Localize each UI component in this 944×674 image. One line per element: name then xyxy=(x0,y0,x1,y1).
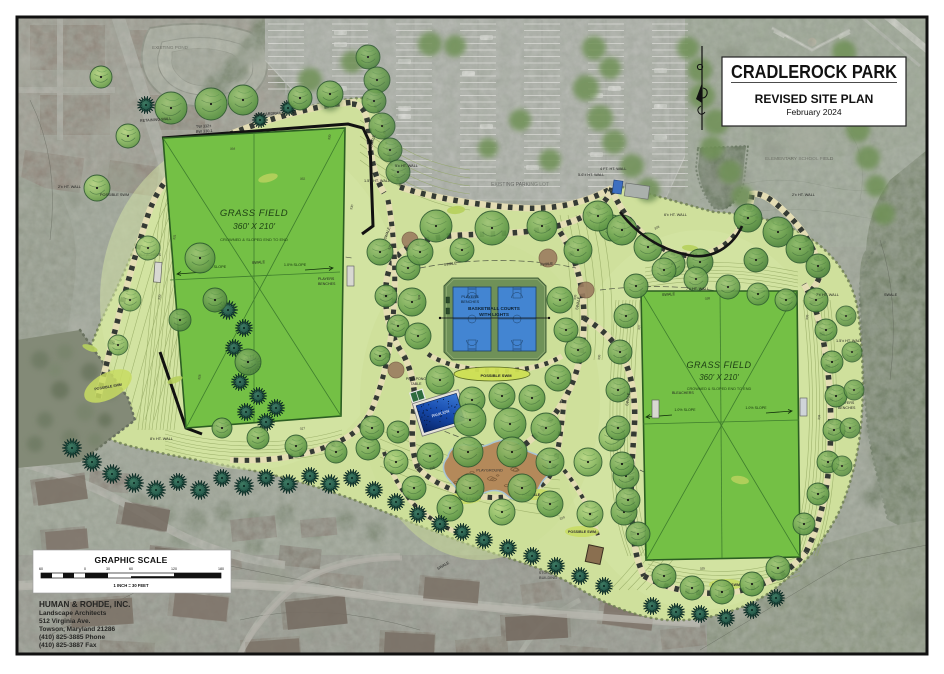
svg-text:336: 336 xyxy=(597,354,601,360)
svg-text:334: 334 xyxy=(230,147,236,151)
svg-text:PLAYGROUND: PLAYGROUND xyxy=(476,469,503,473)
svg-text:60: 60 xyxy=(129,567,133,571)
svg-text:2'± HT. WALL: 2'± HT. WALL xyxy=(58,185,81,189)
svg-text:POSSIBLE SWM: POSSIBLE SWM xyxy=(568,530,596,534)
svg-text:POSSIBLE SWM: POSSIBLE SWM xyxy=(100,193,129,197)
svg-text:8'± HT. WALL: 8'± HT. WALL xyxy=(150,437,173,441)
svg-text:6'± HT. WALL: 6'± HT. WALL xyxy=(664,213,687,217)
svg-text:334: 334 xyxy=(817,414,821,420)
svg-text:332: 332 xyxy=(300,177,306,181)
svg-text:1.0% SLOPE: 1.0% SLOPE xyxy=(284,263,307,267)
svg-text:GRASS FIELD: GRASS FIELD xyxy=(220,208,288,219)
svg-text:CROWNED & SLOPED END TO END: CROWNED & SLOPED END TO END xyxy=(220,237,288,242)
svg-text:BENCHES: BENCHES xyxy=(461,300,480,304)
svg-text:30: 30 xyxy=(106,567,110,571)
svg-text:360' X 210': 360' X 210' xyxy=(233,221,275,231)
svg-text:(410) 825-3887 Fax: (410) 825-3887 Fax xyxy=(39,642,97,649)
svg-text:BUILDING: BUILDING xyxy=(539,576,557,580)
svg-text:SWALE: SWALE xyxy=(884,293,898,297)
svg-text:GRASS FIELD: GRASS FIELD xyxy=(686,360,751,370)
svg-text:PLAYERS: PLAYERS xyxy=(318,277,335,281)
svg-text:180: 180 xyxy=(218,567,224,571)
svg-text:PLAYERS: PLAYERS xyxy=(461,295,479,299)
svg-text:POSSIBLE SWM: POSSIBLE SWM xyxy=(480,373,512,378)
svg-text:1.5'± HT. WALL: 1.5'± HT. WALL xyxy=(836,339,862,343)
svg-text:1.5'± HT. WALL: 1.5'± HT. WALL xyxy=(364,179,390,183)
svg-text:GRAPHIC SCALE: GRAPHIC SCALE xyxy=(95,555,168,565)
svg-text:2'± HT. WALL: 2'± HT. WALL xyxy=(792,193,815,197)
svg-text:February 2024: February 2024 xyxy=(786,107,842,117)
svg-text:CROWNED & SLOPED END TO END: CROWNED & SLOPED END TO END xyxy=(687,387,752,391)
svg-text:337: 337 xyxy=(637,324,641,330)
svg-text:60: 60 xyxy=(39,567,43,571)
svg-text:(410) 825-3885 Phone: (410) 825-3885 Phone xyxy=(39,634,106,641)
svg-text:120: 120 xyxy=(171,567,177,571)
svg-text:334: 334 xyxy=(417,294,421,300)
svg-text:CRADLEROCK PARK: CRADLEROCK PARK xyxy=(731,62,897,82)
svg-text:REVISED SITE PLAN: REVISED SITE PLAN xyxy=(755,92,874,106)
svg-text:WITH LIGHTS: WITH LIGHTS xyxy=(479,312,509,317)
svg-text:7'± HT. WALL: 7'± HT. WALL xyxy=(686,287,709,291)
svg-text:5'± HT. WALL: 5'± HT. WALL xyxy=(395,164,418,168)
svg-text:360' X 210': 360' X 210' xyxy=(699,373,739,382)
svg-text:335: 335 xyxy=(700,566,706,571)
svg-text:335: 335 xyxy=(573,294,577,300)
svg-text:7'± HT. WALL: 7'± HT. WALL xyxy=(816,293,839,297)
svg-text:1.0% SLOPE: 1.0% SLOPE xyxy=(745,406,767,410)
svg-text:BASKETBALL COURTS: BASKETBALL COURTS xyxy=(468,306,520,311)
svg-text:1 INCH = 30 FEET: 1 INCH = 30 FEET xyxy=(113,583,148,588)
svg-text:512 Virginia Ave.: 512 Virginia Ave. xyxy=(39,618,91,625)
svg-text:0: 0 xyxy=(84,567,86,571)
svg-text:PING PONG: PING PONG xyxy=(406,377,427,381)
svg-text:Towson, Maryland 21286: Towson, Maryland 21286 xyxy=(39,626,115,633)
svg-text:BENCHES: BENCHES xyxy=(838,406,856,410)
svg-text:335: 335 xyxy=(805,314,809,320)
svg-text:TABLE: TABLE xyxy=(410,382,422,386)
svg-text:HUMAN & ROHDE, INC.: HUMAN & ROHDE, INC. xyxy=(39,600,130,609)
svg-text:BENCHES: BENCHES xyxy=(318,282,336,286)
svg-text:4 FT. HT. WALL: 4 FT. HT. WALL xyxy=(600,167,626,171)
svg-text:BLEACHERS: BLEACHERS xyxy=(672,391,694,395)
svg-text:5-6'± HT. WALL: 5-6'± HT. WALL xyxy=(578,173,604,177)
svg-text:Landscape Architects: Landscape Architects xyxy=(39,610,107,617)
svg-text:1.0% SLOPE: 1.0% SLOPE xyxy=(674,408,696,412)
